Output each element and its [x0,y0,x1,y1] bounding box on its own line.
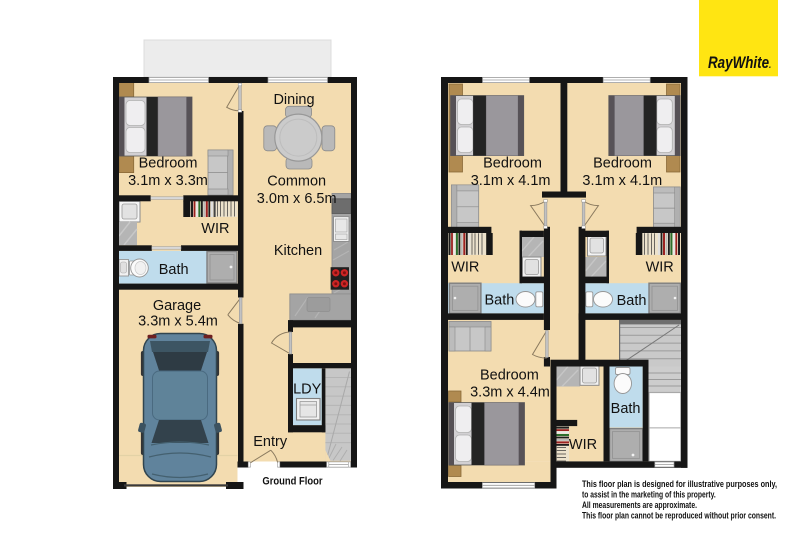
svg-text:Bath: Bath [484,292,514,308]
svg-text:Bedroom: Bedroom [480,367,539,383]
svg-text:3.1m x 4.1m: 3.1m x 4.1m [471,173,551,189]
svg-text:Ground Floor: Ground Floor [262,475,323,487]
svg-text:Bath: Bath [617,293,647,309]
svg-text:Kitchen: Kitchen [274,243,322,259]
svg-text:3.3m x 5.4m: 3.3m x 5.4m [138,314,218,330]
svg-text:to assist in the marketing of: to assist in the marketing of this prope… [582,490,716,500]
svg-text:Bedroom: Bedroom [483,155,542,171]
svg-text:WIR: WIR [201,221,229,237]
svg-text:WIR: WIR [569,437,597,453]
svg-text:Dining: Dining [273,92,314,108]
svg-text:Entry: Entry [253,434,288,450]
svg-text:RayWhite.: RayWhite. [708,54,771,72]
svg-text:Bath: Bath [611,401,641,417]
svg-text:WIR: WIR [646,260,674,276]
svg-text:This floor plan cannot be repr: This floor plan cannot be reproduced wit… [582,510,776,520]
svg-text:3.0m x 6.5m: 3.0m x 6.5m [257,191,337,207]
svg-text:WIR: WIR [451,260,479,276]
svg-text:Common: Common [267,174,326,190]
svg-text:3.1m x 3.3m: 3.1m x 3.3m [128,173,208,189]
svg-text:All measurements are approxima: All measurements are approximate. [582,500,697,510]
svg-text:3.3m x 4.4m: 3.3m x 4.4m [470,384,550,400]
svg-text:LDY: LDY [293,381,322,397]
svg-text:Bedroom: Bedroom [139,155,198,171]
svg-text:Garage: Garage [153,298,201,314]
svg-text:Bath: Bath [159,262,189,278]
svg-text:Bedroom: Bedroom [593,155,652,171]
svg-text:This floor plan is designed fo: This floor plan is designed for illustra… [582,479,777,489]
svg-text:3.1m x 4.1m: 3.1m x 4.1m [582,173,662,189]
